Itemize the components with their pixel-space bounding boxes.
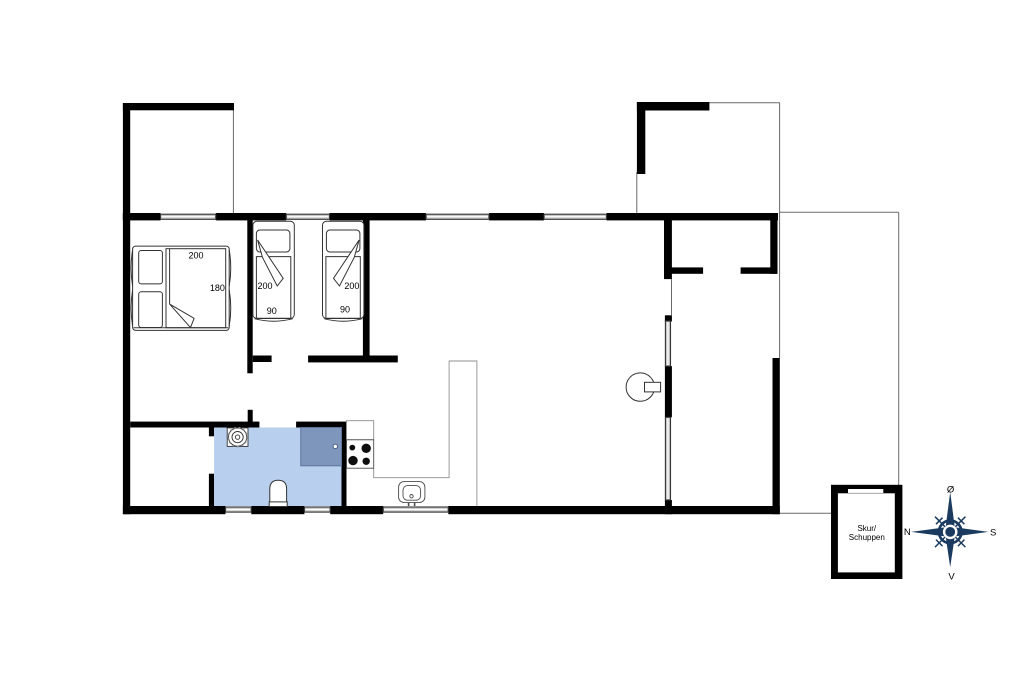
svg-text:S: S [990, 527, 996, 538]
svg-text:180: 180 [210, 283, 225, 293]
svg-text:90: 90 [267, 306, 277, 316]
svg-text:Ø: Ø [947, 485, 955, 496]
svg-text:V: V [948, 571, 955, 582]
svg-text:90: 90 [340, 305, 350, 315]
svg-text:N: N [904, 527, 911, 538]
svg-text:Schuppen: Schuppen [849, 533, 885, 542]
svg-text:200: 200 [257, 281, 272, 291]
svg-text:200: 200 [344, 281, 359, 291]
svg-text:200: 200 [188, 250, 203, 260]
svg-text:Skur/: Skur/ [857, 524, 876, 533]
